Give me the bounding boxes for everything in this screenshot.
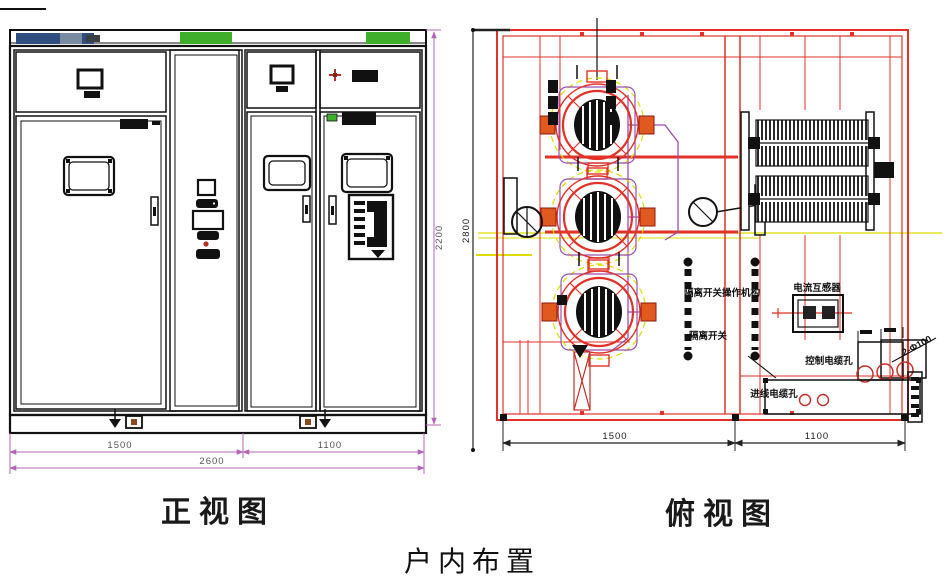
door-handle[interactable]	[329, 196, 336, 224]
drawing-caption: 户内布置	[0, 540, 944, 580]
label-disconnect-switch: 隔离开关	[689, 330, 728, 342]
viewing-window	[342, 154, 392, 192]
left-auxiliary-devices	[504, 178, 542, 237]
green-indicator-strip	[180, 32, 232, 44]
door-handle[interactable]	[151, 197, 158, 225]
disconnect-switch-poles	[684, 258, 760, 361]
mimic-diagram-plate	[349, 195, 393, 259]
door-label	[120, 119, 148, 129]
bus-stub	[874, 162, 894, 178]
front-left-cabinet	[16, 52, 166, 409]
front-view-title: 正视图	[161, 496, 275, 529]
front-mid-cabinet	[247, 50, 320, 411]
door-handle[interactable]	[303, 196, 310, 222]
indicator-lamp	[203, 241, 208, 246]
top-dim-right: 1100	[805, 431, 829, 442]
front-right-cabinet	[320, 52, 420, 411]
resistor-banks	[741, 112, 894, 230]
top-dim-left: 1500	[602, 431, 627, 442]
front-dim-height: 2200	[434, 225, 445, 250]
top-dim-depth: 2800	[461, 218, 472, 243]
front-view-drawing: 1500 1100 2600 2200 正视图	[0, 0, 460, 540]
label-control-cable-hole: 控制电缆孔	[805, 355, 853, 367]
viewing-window	[264, 156, 310, 190]
cable-trench	[572, 345, 590, 410]
front-top-rail	[10, 30, 426, 46]
viewing-window	[64, 157, 114, 195]
door-label	[342, 112, 376, 125]
coil-phase-c	[542, 252, 656, 366]
ground-arrow-icon	[109, 419, 121, 428]
transformer-coils	[540, 18, 656, 366]
top-view-title: 俯视图	[665, 497, 779, 531]
top-view-drawing: 电流互感器 隔离开关操作机构 隔离开关 控制电缆孔 进线电缆孔 2-Φ100 1…	[460, 0, 944, 540]
meter-icon	[78, 70, 102, 98]
front-dim-total: 2600	[199, 456, 224, 467]
panel-label	[352, 70, 378, 82]
label-incoming-cable-hole: 进线电缆孔	[750, 388, 798, 400]
front-view-panel: 1500 1100 2600 2200 正视图	[0, 0, 460, 545]
label-operating-mechanism: 隔离开关操作机构	[684, 287, 761, 299]
front-cabinet-outline	[10, 46, 426, 415]
front-dim-left: 1500	[107, 440, 132, 451]
meter-icon	[271, 66, 293, 92]
green-chip	[327, 114, 337, 121]
nameplate	[16, 33, 94, 44]
label-hole-callout: 2-Φ100	[900, 334, 934, 359]
valve-handle-icon	[329, 69, 341, 81]
coil-phase-b	[541, 157, 655, 271]
front-middle-column	[170, 50, 242, 411]
ground-arrow-icon	[319, 419, 331, 428]
label-current-transformer: 电流互感器	[793, 282, 841, 294]
instrument-stack	[193, 180, 223, 259]
top-view-panel: 电流互感器 隔离开关操作机构 隔离开关 控制电缆孔 进线电缆孔 2-Φ100 1…	[460, 0, 944, 545]
reference-lines-yellow	[476, 233, 942, 255]
front-plinth	[10, 409, 426, 433]
green-indicator-strip	[366, 32, 410, 44]
front-dim-right: 1100	[318, 440, 342, 451]
